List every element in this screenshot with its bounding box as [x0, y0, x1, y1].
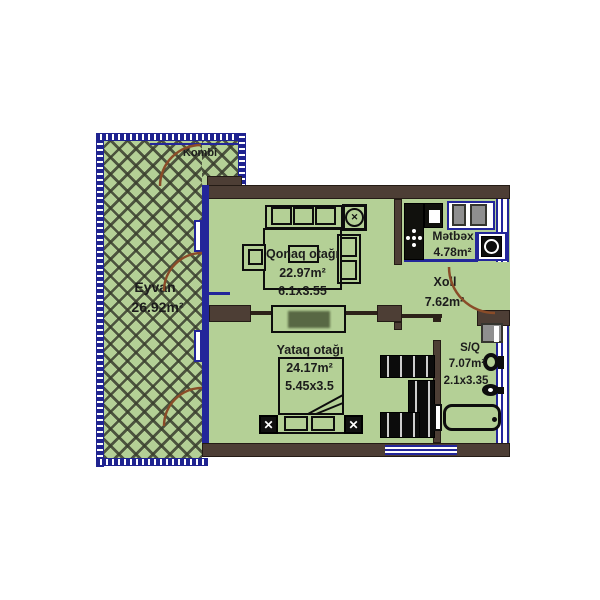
partition-block-left	[209, 305, 251, 322]
bath-sink-icon	[481, 323, 503, 343]
glass-detail-line	[204, 292, 230, 295]
bed-pillow	[284, 416, 308, 431]
sq-dims: 2.1x3.35	[436, 375, 496, 388]
sq-label: S/Q	[452, 342, 488, 355]
sofa-cushion	[271, 207, 292, 225]
nightstand-lamp-icon: ✕	[344, 415, 363, 434]
xoll-label: Xoll	[420, 276, 470, 290]
yataq-label: Yataq otağı	[255, 344, 365, 358]
qonaq-dims: 6.1x3.55	[260, 285, 345, 299]
tv-stand	[271, 305, 346, 333]
qonaq-area: 22.97m²	[260, 267, 345, 281]
bed-pillow	[311, 416, 335, 431]
yataq-area: 24.17m²	[272, 362, 347, 376]
window-sill-2	[194, 330, 202, 362]
tub-shelf	[434, 404, 442, 431]
sq-wall-stub	[433, 314, 441, 322]
metbex-label: Mətbəx	[418, 230, 488, 243]
wardrobe-bottom	[380, 412, 420, 438]
sofa-cushion	[315, 207, 336, 225]
bidet-stub	[498, 387, 504, 394]
partition-step	[394, 322, 402, 330]
sq-area: 7.07m²	[438, 358, 496, 371]
qonaq-label: Qonaq otağı	[250, 248, 355, 262]
balcony-railing-left	[96, 133, 104, 467]
sofa	[265, 205, 343, 229]
kitchen-counter-top	[424, 203, 443, 228]
partition-block-right	[377, 305, 402, 322]
kombi-glass-line	[150, 143, 238, 145]
sofa-cushion	[293, 207, 314, 225]
tv-stand-shade	[288, 311, 330, 328]
window-sill-1	[194, 220, 202, 252]
wall-bottom	[202, 443, 510, 457]
cabinet-icon	[470, 204, 487, 226]
xoll-area: 7.62m²	[412, 296, 477, 310]
stove-icon	[412, 236, 416, 240]
wall-living-kitchen	[394, 199, 402, 265]
eyvan-area: 26.92m²	[110, 300, 205, 315]
wardrobe-top	[380, 355, 435, 378]
fan-icon: ✕	[345, 208, 364, 227]
kombi-label: Kombi	[170, 147, 230, 159]
window-bottom	[385, 445, 457, 455]
balcony-railing-top	[96, 133, 246, 141]
wall-top	[202, 185, 510, 199]
toilet-tank	[498, 356, 504, 369]
speaker-box: ✕	[342, 204, 367, 231]
balcony-railing-bottom	[96, 458, 208, 466]
yataq-dims: 5.45x3.5	[272, 380, 347, 394]
wall-top-step	[207, 176, 242, 186]
fridge-cabinet-box	[447, 201, 495, 230]
floor-plan: ✕ ✕ ✕ Kombi Eyvan 26.92m² Qonaq otağı 22…	[0, 0, 600, 600]
eyvan-label: Eyvan	[115, 280, 195, 295]
bath-sink-basin	[494, 326, 499, 342]
sink-icon	[429, 210, 440, 223]
metbex-area: 4.78m²	[420, 246, 485, 259]
nightstand-lamp-icon: ✕	[259, 415, 278, 434]
fridge-icon	[452, 204, 466, 226]
bathtub-icon	[443, 404, 501, 431]
bed-base-line	[268, 432, 350, 434]
bidet-dot	[488, 388, 493, 392]
tub-drain	[492, 417, 497, 422]
